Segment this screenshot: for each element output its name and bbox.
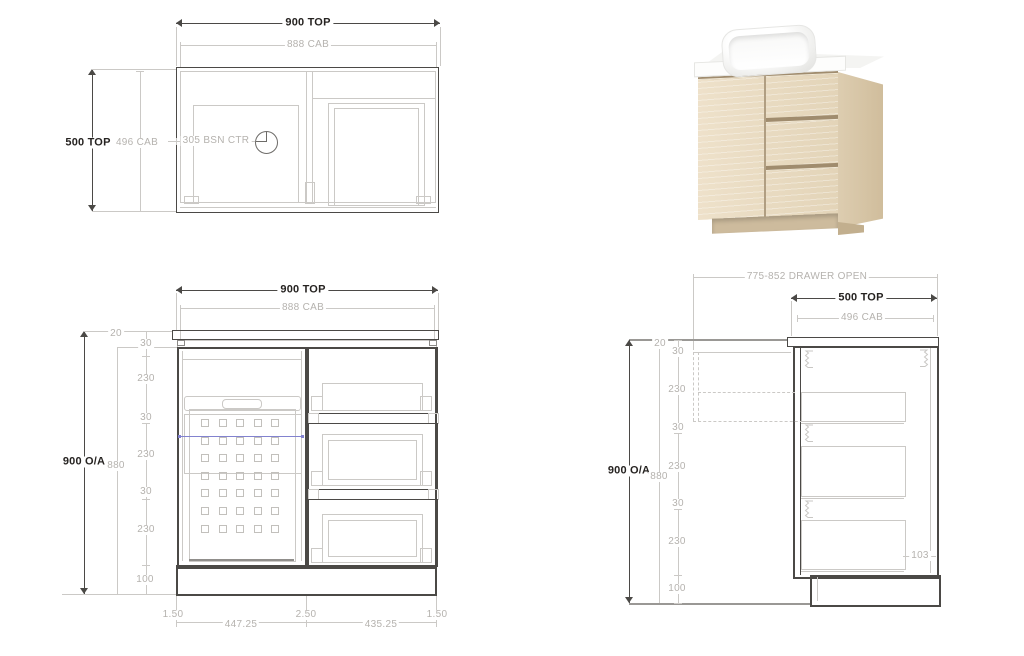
dim-label: 447.25 [223, 620, 259, 630]
hamper-hole [254, 419, 262, 427]
open-drawer-dashed-line [698, 392, 795, 393]
dim-tick [136, 71, 144, 72]
hamper-hole [236, 507, 244, 515]
hamper-hole [254, 489, 262, 497]
hamper-hole [219, 437, 227, 445]
blue-line-endpoint [301, 435, 304, 438]
dim-tick [136, 211, 144, 212]
render-basin [720, 24, 817, 78]
hamper-hole [236, 525, 244, 533]
drawer-box-bottom-line [801, 571, 904, 572]
arrowhead-icon [176, 19, 182, 27]
hamper-hole [201, 525, 209, 533]
arrowhead-icon [434, 19, 440, 27]
arrowhead-icon [931, 294, 937, 302]
open-drawer-front-dashed [698, 352, 699, 421]
dim-label: 20 [108, 329, 124, 339]
hamper-hole [219, 419, 227, 427]
hamper-hole [271, 507, 279, 515]
floor-line [629, 603, 810, 605]
dim-tick [674, 433, 682, 434]
hamper-rail-blue-line [179, 436, 303, 437]
dim-label: 100 [134, 575, 156, 585]
dim-label: 888 CAB [285, 40, 331, 50]
drawer-box-side [801, 446, 906, 497]
drawer-box-bottom-line [801, 498, 904, 499]
dim-label: 30 [138, 339, 154, 349]
drawer-runner-clip [420, 548, 432, 563]
hamper-hole [271, 437, 279, 445]
render-cabinet-side [838, 72, 883, 228]
hamper-hole [271, 472, 279, 480]
dim-label: 30 [670, 499, 686, 509]
hamper-hole [236, 454, 244, 462]
dim-tick [674, 340, 682, 341]
hamper-hole [254, 437, 262, 445]
dim-label: 30 [138, 487, 154, 497]
drawer-runner-clip [420, 471, 432, 486]
dim-label: 888 CAB [280, 303, 326, 313]
drawer-runner-clip [311, 471, 323, 486]
drawer-runner-clip [311, 396, 323, 411]
hamper-hole [219, 489, 227, 497]
drawer-runner-clip [311, 548, 323, 563]
open-drawer-dashed-line [693, 421, 808, 422]
extension-line [176, 27, 177, 66]
hamper-hole [271, 419, 279, 427]
dim-label: 1.50 [425, 610, 450, 620]
hamper-hole [271, 454, 279, 462]
dim-label: 230 [135, 450, 157, 460]
wood-grain-texture [698, 70, 838, 220]
render-cabinet-front [698, 70, 838, 220]
drawer-box-bottom-line [801, 423, 904, 424]
hamper-hole [201, 454, 209, 462]
door-edge-line [182, 351, 183, 561]
drawer-runner-clip-icon [801, 350, 814, 369]
extension-line [438, 293, 439, 330]
dim-label: 900 TOP [282, 18, 333, 29]
drawer-runner-clip-icon [801, 500, 814, 519]
hamper-hole [271, 525, 279, 533]
extension-line [84, 331, 172, 332]
extension-line [937, 280, 938, 336]
hamper-hole [236, 437, 244, 445]
dim-label: 30 [670, 347, 686, 357]
hamper-hole [271, 489, 279, 497]
open-drawer-front-dashed [693, 352, 694, 421]
dim-label: 1.50 [161, 610, 186, 620]
render-kickboard-side [838, 222, 864, 235]
hamper-hole [219, 454, 227, 462]
hamper-hole [201, 472, 209, 480]
centre-cross-icon [266, 132, 267, 142]
open-drawer-top-line [693, 352, 791, 353]
dim-tick [142, 356, 150, 357]
hamper-hole [236, 472, 244, 480]
blue-line-endpoint [178, 435, 181, 438]
dim-label: 775-852 DRAWER OPEN [745, 272, 869, 282]
dim-label: 230 [666, 385, 688, 395]
dim-label: 880 [648, 472, 670, 482]
dim-label: 900 O/A [60, 457, 108, 468]
drawer-1-box [322, 383, 423, 411]
dim-tick [674, 575, 682, 576]
divider-block [305, 182, 315, 204]
vanity-technical-drawing: 900 TOP 888 CAB 500 TOP 496 CAB [0, 0, 1024, 656]
dim-label: 100 [666, 584, 688, 594]
basin-cutout-outline [193, 105, 299, 203]
hamper-hole [254, 525, 262, 533]
hamper-handle [222, 399, 262, 409]
extension-line [440, 27, 441, 66]
arrowhead-icon [80, 588, 88, 594]
kickboard-inner-line [817, 577, 818, 601]
door-drawer-divider [764, 76, 766, 217]
dim-label: 103 [909, 551, 931, 561]
drawer-box-side [801, 520, 906, 570]
rail-end-block [177, 340, 185, 346]
hamper-hole [201, 489, 209, 497]
dim-label: 305 BSN CTR [181, 136, 252, 146]
dim-label: 30 [138, 413, 154, 423]
dim-tick [933, 315, 934, 322]
dim-chain-line [146, 331, 147, 594]
drawer-box-side [801, 392, 906, 422]
dim-tick [674, 509, 682, 510]
extension-line [436, 48, 437, 67]
dim-label: 435.25 [363, 620, 399, 630]
dim-label: 230 [666, 537, 688, 547]
kickboard-front [176, 565, 437, 596]
dim-tick [674, 603, 682, 604]
drawer-runner-clip-icon [801, 424, 814, 443]
dim-tick [142, 423, 150, 424]
benchtop-front [172, 330, 439, 340]
drawer-plan-inner [334, 108, 419, 206]
rail-end-block [429, 340, 437, 346]
hamper-hole [236, 489, 244, 497]
drawer-2-box-inner [328, 440, 417, 480]
dim-label: 880 [105, 461, 127, 471]
extension-line [92, 69, 176, 70]
drawer-3-box-inner [328, 520, 417, 557]
dim-label: 230 [135, 525, 157, 535]
hamper-hole [219, 525, 227, 533]
dim-label: 230 [666, 462, 688, 472]
dim-label: 900 O/A [605, 466, 653, 477]
hamper-hole [254, 507, 262, 515]
hamper-hole [254, 454, 262, 462]
kickboard-side [810, 575, 941, 607]
hamper-base-line [189, 559, 294, 561]
dim-label: 2.50 [294, 610, 319, 620]
door-top-line [182, 359, 301, 360]
hamper-hole [219, 507, 227, 515]
dim-tick [142, 331, 150, 332]
dim-tick [797, 315, 798, 322]
arrowhead-icon [625, 340, 633, 346]
dim-label: 496 CAB [839, 313, 885, 323]
drawer-runner-clip-icon [919, 349, 932, 368]
dim-label: 500 TOP [62, 138, 113, 149]
drawer-rail-line [312, 98, 436, 99]
corner-bracket [184, 196, 199, 204]
dim-label: 496 CAB [114, 138, 160, 148]
extension-line [791, 301, 792, 336]
floor-line [62, 594, 176, 595]
drawer-runner-clip [420, 396, 432, 411]
dim-tick [142, 594, 150, 595]
hamper-hole [201, 419, 209, 427]
hamper-hole [219, 472, 227, 480]
dim-tick [142, 565, 150, 566]
dim-label: 900 TOP [277, 285, 328, 296]
hamper-hole [201, 507, 209, 515]
hamper-hole [236, 419, 244, 427]
hamper-hole [254, 472, 262, 480]
hamper-hole [201, 437, 209, 445]
extension-line [92, 211, 176, 212]
dim-label: 20 [652, 339, 668, 349]
dim-label: 500 TOP [835, 293, 886, 304]
back-panel-line [930, 348, 931, 573]
arrowhead-icon [625, 597, 633, 603]
extension-line [176, 293, 177, 330]
front-edge-line [180, 207, 436, 208]
dim-tick [176, 138, 177, 145]
dim-label: 230 [135, 374, 157, 384]
dim-tick [142, 499, 150, 500]
dim-label: 30 [670, 423, 686, 433]
extension-line [180, 48, 181, 67]
